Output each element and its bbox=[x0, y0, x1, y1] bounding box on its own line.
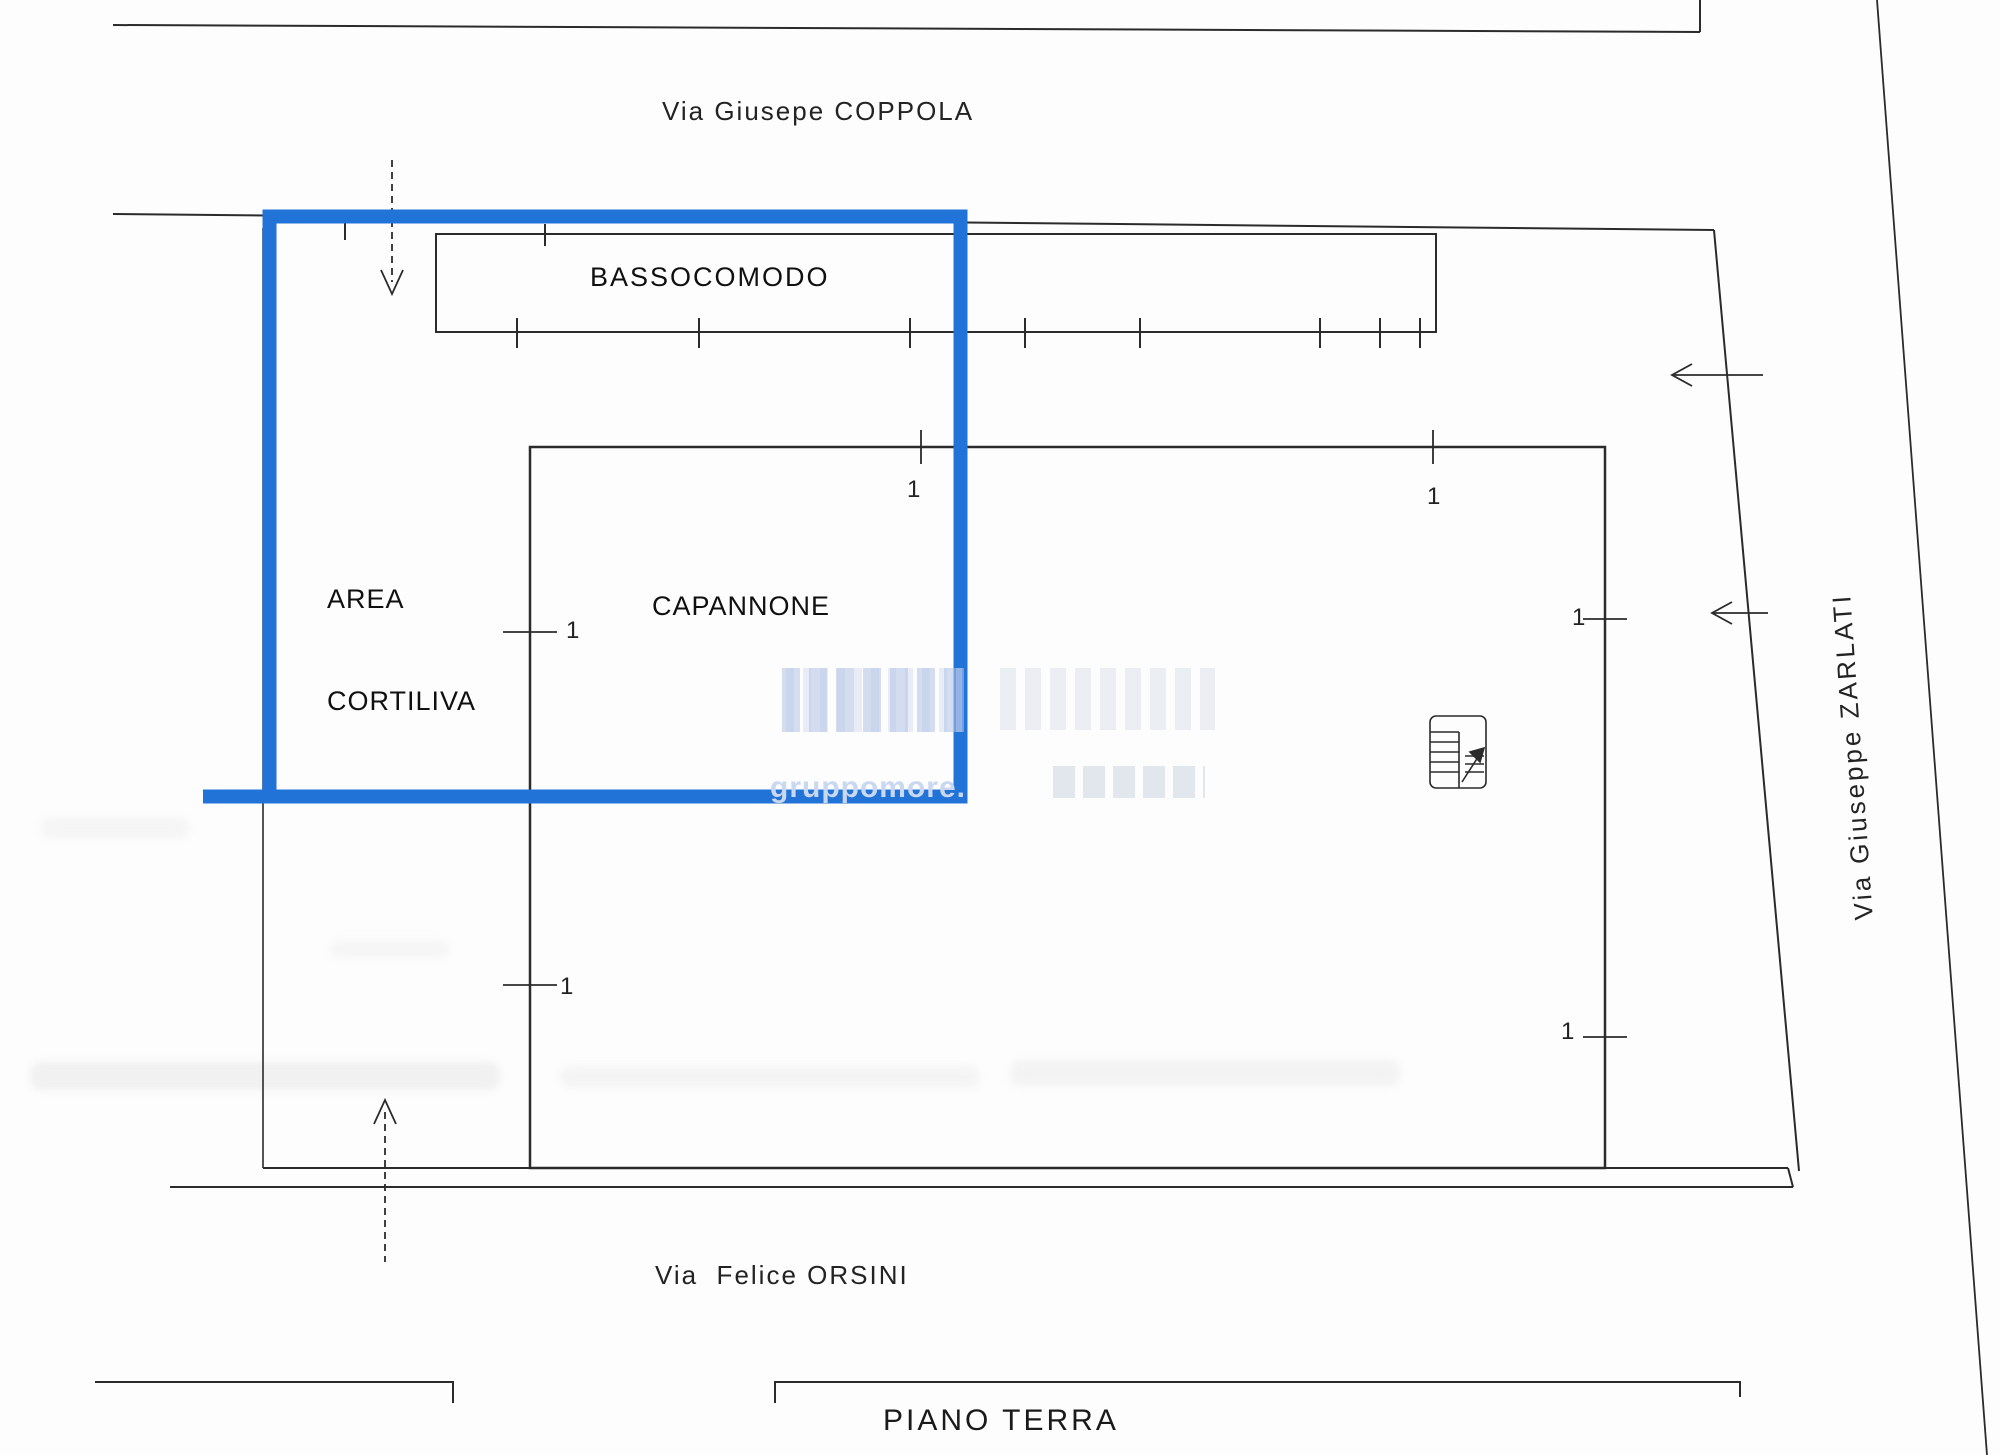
area-label-bassocomodo: BASSOCOMODO bbox=[590, 262, 830, 293]
area-label-area-cortiliva-line2: CORTILIVA bbox=[327, 684, 476, 718]
street-label-orsini: Via Felice ORSINI bbox=[655, 1260, 909, 1291]
south-boundary-lines bbox=[170, 1168, 1793, 1187]
south-building-left-outline bbox=[95, 1382, 453, 1403]
area-label-area-cortiliva-line1: AREA bbox=[327, 582, 476, 616]
watermark-text: gruppomore.i bbox=[770, 771, 967, 803]
east-boundary-line bbox=[1714, 230, 1799, 1171]
street-label-coppola: Via Giusepe COPPOLA bbox=[662, 96, 974, 127]
dimension-label: 1 bbox=[907, 476, 920, 504]
dimension-label: 1 bbox=[566, 617, 579, 645]
dimension-label: 1 bbox=[560, 973, 573, 1001]
dimension-label: 1 bbox=[1561, 1018, 1574, 1046]
area-label-area-cortiliva: AREA CORTILIVA bbox=[327, 514, 476, 786]
bassocomodo-outline bbox=[345, 222, 1436, 348]
floor-plan-canvas: gruppomore.i Via Giusepe COPPOLA Via Fel… bbox=[0, 0, 2000, 1455]
stairs-icon bbox=[1430, 716, 1486, 788]
plan-title: PIANO TERRA bbox=[883, 1404, 1119, 1438]
area-label-capannone: CAPANNONE bbox=[652, 591, 830, 622]
zarlati-road-line bbox=[1877, 0, 1987, 1455]
dimension-label: 1 bbox=[1572, 604, 1585, 632]
entrance-arrow-bottom bbox=[374, 1100, 396, 1262]
watermark-ghost-word bbox=[1053, 766, 1205, 798]
top-street-line bbox=[113, 0, 1700, 32]
entrance-arrow-right-lower bbox=[1712, 602, 1768, 624]
watermark-pixel-blocks bbox=[1000, 668, 1215, 730]
watermark-pixel-blocks bbox=[782, 668, 967, 732]
entrance-arrow-top bbox=[381, 160, 403, 294]
capannone-outline bbox=[530, 447, 1605, 1168]
south-building-right-outline bbox=[775, 1382, 1740, 1403]
dimension-label: 1 bbox=[1427, 483, 1440, 511]
entrance-arrow-right-upper bbox=[1672, 364, 1763, 386]
